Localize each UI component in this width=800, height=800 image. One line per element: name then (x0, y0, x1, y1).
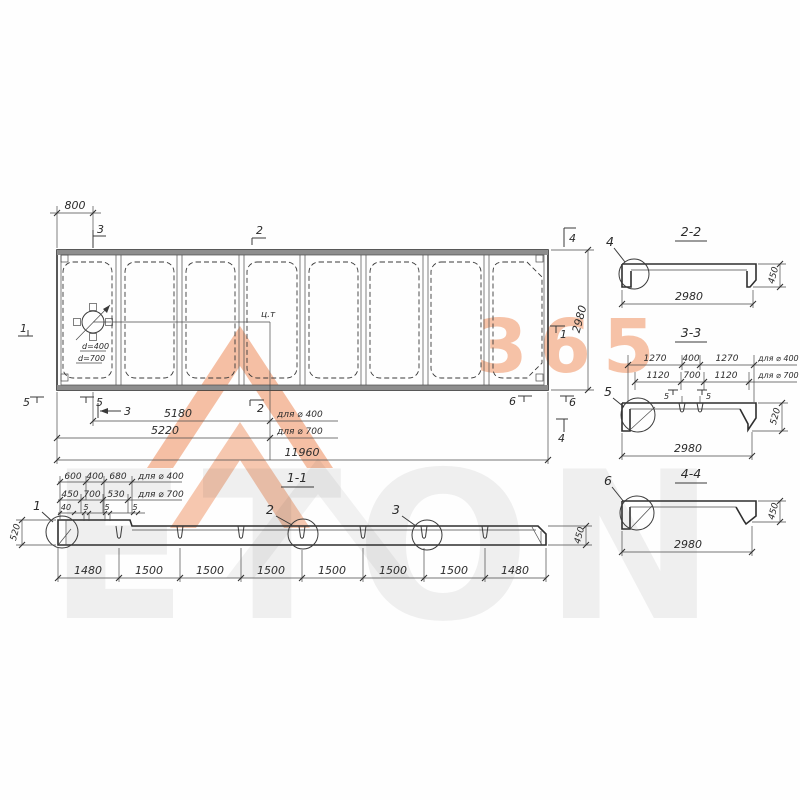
detail-label: 2 (266, 502, 274, 517)
hole-d400-label: d=400 (82, 342, 109, 351)
detail-label: 4 (606, 234, 614, 249)
dim-note: для ⌀ 700 (757, 371, 799, 380)
watermark-logo: ETON 365 (48, 304, 730, 667)
dim-5220-note: для ⌀ 700 (276, 427, 323, 437)
dim-value: 2980 (674, 442, 702, 455)
mark-label: 1 (560, 328, 567, 341)
plan-bottom-edge (57, 385, 548, 390)
chain-value: 1500 (135, 564, 163, 577)
detail-circle-4: 4 (606, 234, 649, 289)
chain-value: 1500 (257, 564, 285, 577)
dim-value: 450 (767, 266, 781, 285)
watermark-letters: ETON (48, 429, 730, 667)
dim-value: 700 (83, 490, 100, 500)
corner-anchor (61, 255, 68, 262)
chain-value: 1500 (196, 564, 224, 577)
dim-value: 1120 (647, 371, 670, 381)
dim-value: 1270 (644, 354, 667, 364)
dim-value: 5 (104, 503, 109, 512)
technical-drawing: ETON 365 (0, 0, 800, 800)
dim-value: 680 (109, 472, 126, 482)
section-mark-5-b: 5 (80, 396, 103, 409)
plan-outline (57, 250, 548, 390)
dim-value: 5 (132, 503, 137, 512)
dim-5220-value: 5220 (151, 424, 179, 437)
section-mark-3-top: 3 (93, 223, 106, 248)
dim-value: 700 (683, 371, 700, 381)
mark-label: 3 (124, 405, 131, 418)
dim-value: 400 (86, 472, 103, 482)
mark-label: 6 (509, 395, 516, 408)
dim-value: 600 (64, 472, 81, 482)
dim-value: 1270 (716, 354, 739, 364)
s22-profile (622, 264, 756, 287)
section-1-1-title: 1-1 (287, 470, 307, 485)
section-mark-2-top: 2 (252, 224, 266, 245)
lifting-hole: d=400 d=700 (74, 304, 113, 364)
section-4-4-title: 4-4 (681, 466, 701, 481)
mark-label: 2 (257, 402, 264, 415)
mark-label: 1 (20, 322, 27, 335)
chain-value: 1480 (501, 564, 529, 577)
section-2-2-title: 2-2 (681, 224, 701, 239)
dim-note: для ⌀ 700 (137, 490, 184, 500)
dim-note: для ⌀ 400 (137, 472, 184, 482)
dim-value: 450 (767, 502, 781, 521)
centroid-label: ц.т (261, 310, 276, 320)
chain-value: 1500 (379, 564, 407, 577)
mark-label: 2 (256, 224, 263, 237)
mark-label: 5 (706, 392, 711, 401)
dim-value: 400 (682, 354, 699, 364)
dim-note: для ⌀ 400 (757, 354, 799, 363)
detail-label: 3 (392, 502, 400, 517)
dim-value: 2980 (675, 290, 703, 303)
dim-value: 5 (83, 503, 88, 512)
s33-dim-h: 520 (752, 400, 788, 434)
plan-panels (63, 262, 542, 378)
arrowhead-icon (103, 305, 110, 313)
corner-anchor (536, 255, 543, 262)
dim-value: 520 (769, 407, 783, 426)
dim-800-value: 800 (65, 199, 86, 212)
s33-small-marks: 5 5 (664, 390, 711, 401)
watermark-digits: 365 (476, 304, 666, 390)
dim-value: 1120 (715, 371, 738, 381)
section-mark-4-top: 4 (564, 228, 576, 247)
section-mark-2-bottom: 2 (250, 400, 264, 415)
dim-value: 520 (9, 523, 23, 542)
mark-label: 5 (23, 396, 30, 409)
detail-label: 1 (33, 498, 41, 513)
s22-dim-h: 450 (753, 261, 786, 290)
dim-5180-value: 5180 (164, 407, 192, 420)
mark-label: 5 (664, 392, 669, 401)
dim-value: 450 (61, 490, 78, 500)
chain-value: 1500 (318, 564, 346, 577)
corner-anchor (61, 374, 68, 381)
plan-ribs (116, 255, 489, 385)
section-3-3-title: 3-3 (681, 325, 701, 340)
section-mark-5-a: 5 (23, 396, 44, 409)
mark-label: 4 (569, 232, 576, 245)
s44-dim-h: 450 (752, 498, 786, 525)
chain-value: 1480 (74, 564, 102, 577)
dim-5180-note: для ⌀ 400 (276, 410, 323, 420)
section-mark-1-left: 1 (18, 322, 33, 336)
plan-inner-outline (61, 255, 544, 385)
hole-d700-label: d=700 (78, 354, 105, 363)
section-2-2: 2-2 4 2980 450 (606, 224, 786, 308)
dim-11960-value: 11960 (285, 446, 320, 459)
detail-label: 5 (604, 384, 612, 399)
detail-label: 6 (604, 473, 612, 488)
dim-value: 530 (107, 490, 124, 500)
drawing-sheet: ETON 365 (0, 0, 800, 800)
section-mark-6-b: 6 (560, 396, 576, 409)
plan-top-edge (57, 250, 548, 255)
dim-value: 40 (61, 503, 71, 512)
chain-value: 1500 (440, 564, 468, 577)
mark-label: 3 (97, 223, 104, 236)
section-mark-6-a: 6 (509, 395, 532, 408)
dim-value: 2980 (674, 538, 702, 551)
mark-label: 6 (569, 396, 576, 409)
s33-profile (622, 403, 756, 431)
s33-rib-notches (679, 396, 703, 412)
mark-label: 5 (96, 396, 103, 409)
mark-label: 4 (558, 432, 565, 445)
